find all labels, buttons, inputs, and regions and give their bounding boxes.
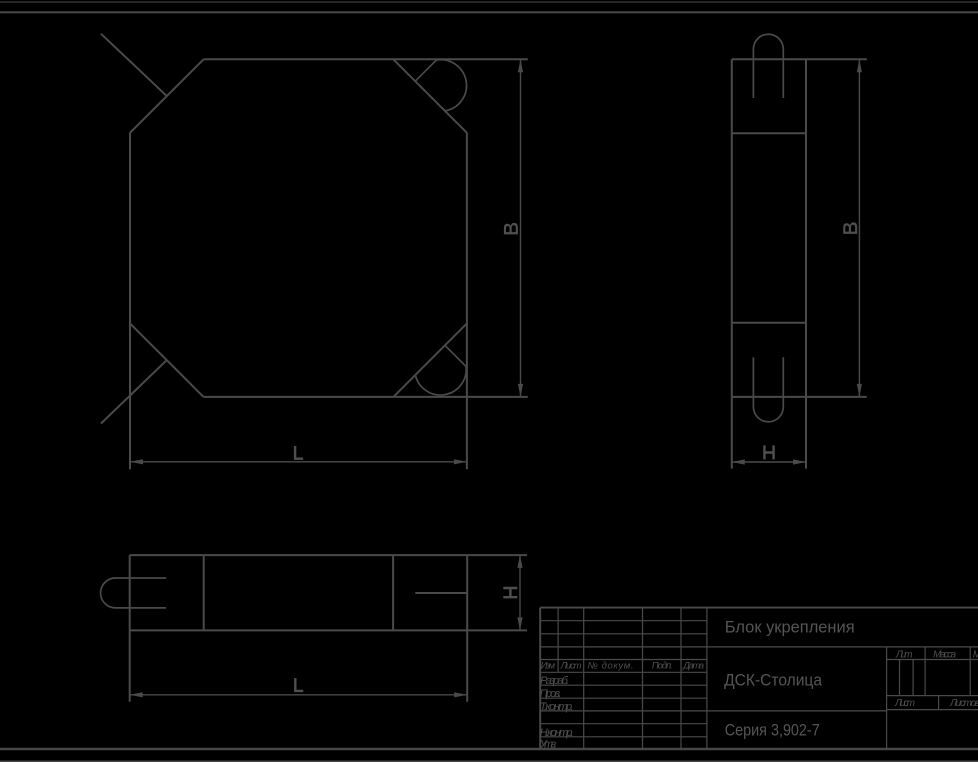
svg-text:Н.контр.: Н.контр. [540, 727, 574, 739]
svg-text:Лист: Лист [894, 698, 915, 709]
svg-text:Лит.: Лит. [895, 650, 913, 661]
svg-text:Дата: Дата [682, 660, 704, 671]
svg-text:Листов: Листов [949, 698, 978, 709]
svg-text:Масса: Масса [933, 650, 956, 661]
svg-text:Разраб.: Разраб. [540, 675, 569, 687]
svg-text:Масштаб: Масштаб [973, 649, 978, 661]
svg-text:Утв.: Утв. [539, 738, 557, 750]
svg-text:Пров.: Пров. [540, 688, 562, 700]
svg-text:Лист: Лист [560, 660, 582, 671]
svg-text:Серия 3,902-7: Серия 3,902-7 [725, 721, 820, 739]
svg-text:Т.контр.: Т.контр. [540, 701, 574, 713]
svg-text:ДСК-Столица: ДСК-Столица [724, 671, 822, 689]
svg-text:№ докум.: № докум. [588, 660, 634, 671]
svg-text:Подп.: Подп. [652, 660, 673, 671]
svg-text:Изм: Изм [541, 660, 556, 671]
svg-text:Блок укрепления: Блок укрепления [725, 618, 855, 636]
